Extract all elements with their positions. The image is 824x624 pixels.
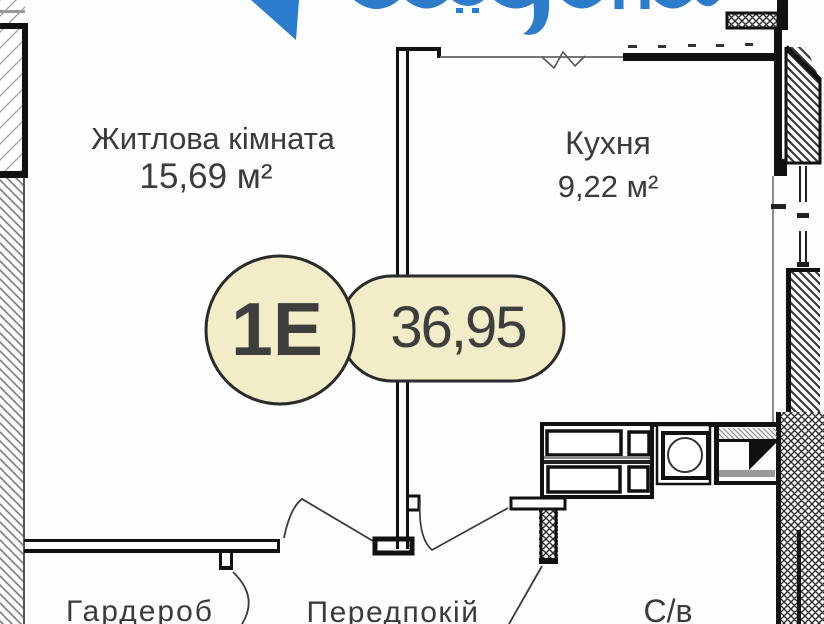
svg-text:С/в: С/в [644,593,693,624]
svg-text:Житлова кімната: Житлова кімната [91,121,335,156]
svg-text:15,69 м²: 15,69 м² [139,157,272,196]
svg-text:9,22 м²: 9,22 м² [558,169,659,204]
svg-text:1Е: 1Е [231,287,323,371]
svg-text:36,95: 36,95 [390,295,525,360]
svg-text:Кухня: Кухня [565,125,651,161]
svg-text:Передпокій: Передпокій [307,596,480,624]
svg-text:Гардероб: Гардероб [66,595,214,624]
